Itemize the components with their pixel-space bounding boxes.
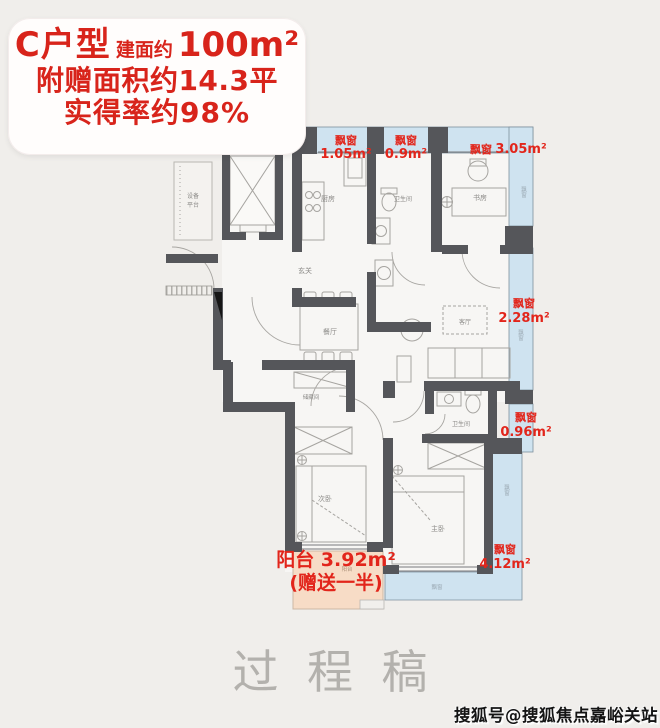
bay-label-5-area: 0.96m² <box>500 425 551 440</box>
info-box: C户型 建面约 100m² 附赠面积约14.3平 实得率约98% <box>8 18 306 155</box>
bay-label-2-area: 0.9m² <box>385 147 427 162</box>
room-label-living: 客厅 <box>459 318 471 326</box>
bay-tag-bottom: 飘窗 <box>431 583 443 591</box>
bay-label-4-name: 飘窗 <box>513 296 535 310</box>
floorplan-page: C户型 建面约 100m² 附赠面积约14.3平 实得率约98% <box>0 0 660 728</box>
room-label-bedroom-master: 主卧 <box>431 524 445 533</box>
bay-tag-right-bottom: 飘窗 <box>503 484 510 497</box>
balcony-title: 阳台 3.92m² <box>276 548 396 571</box>
bay-label-1-name: 飘窗 <box>335 133 357 147</box>
balcony-note: (赠送一半) <box>289 571 382 594</box>
bay-label-2-name: 飘窗 <box>395 133 417 147</box>
bonus-area-line: 附赠面积约14.3平 <box>8 65 306 97</box>
bay-label-6-name: 飘窗 <box>494 542 516 556</box>
bay-label-4-area: 2.28m² <box>498 311 549 326</box>
room-label-study: 书房 <box>473 193 487 202</box>
room-label-entry: 玄关 <box>298 266 312 275</box>
bay-label-5-name: 飘窗 <box>515 410 537 424</box>
bay-tag-top-right: 飘窗 <box>520 186 527 199</box>
room-label-equipment-1: 设备 <box>187 192 199 200</box>
bay-label-1-area: 1.05m² <box>320 147 371 162</box>
credit-watermark: 搜狐号@搜狐焦点嘉峪关站 <box>454 702 658 726</box>
room-label-bath-top: 卫生间 <box>394 195 412 203</box>
room-label-storage: 储藏间 <box>303 393 320 401</box>
usable-rate-line: 实得率约98% <box>8 97 306 129</box>
room-label-equipment-2: 平台 <box>187 201 199 209</box>
balcony-step <box>360 600 384 609</box>
built-area-value: 100m² <box>178 28 299 62</box>
built-area-prefix: 建面约 <box>116 41 173 60</box>
draft-watermark: 过程稿 <box>204 636 456 702</box>
corridor-hatch <box>166 286 212 295</box>
room-label-kitchen: 厨房 <box>321 194 335 203</box>
bay-label-3-area: 3.05m² <box>495 142 546 157</box>
room-label-bath-bottom: 卫生间 <box>452 420 470 428</box>
room-label-dining: 餐厅 <box>323 327 337 336</box>
bay-tag-right-mid: 飘窗 <box>517 329 524 342</box>
bay-label-3-name: 飘窗 <box>470 142 492 156</box>
room-label-bedroom-second: 次卧 <box>318 494 332 503</box>
bay-label-6-area: 4.12m² <box>479 557 530 572</box>
unit-type-label: C户型 <box>15 28 111 62</box>
info-line1: C户型 建面约 100m² <box>8 28 306 62</box>
